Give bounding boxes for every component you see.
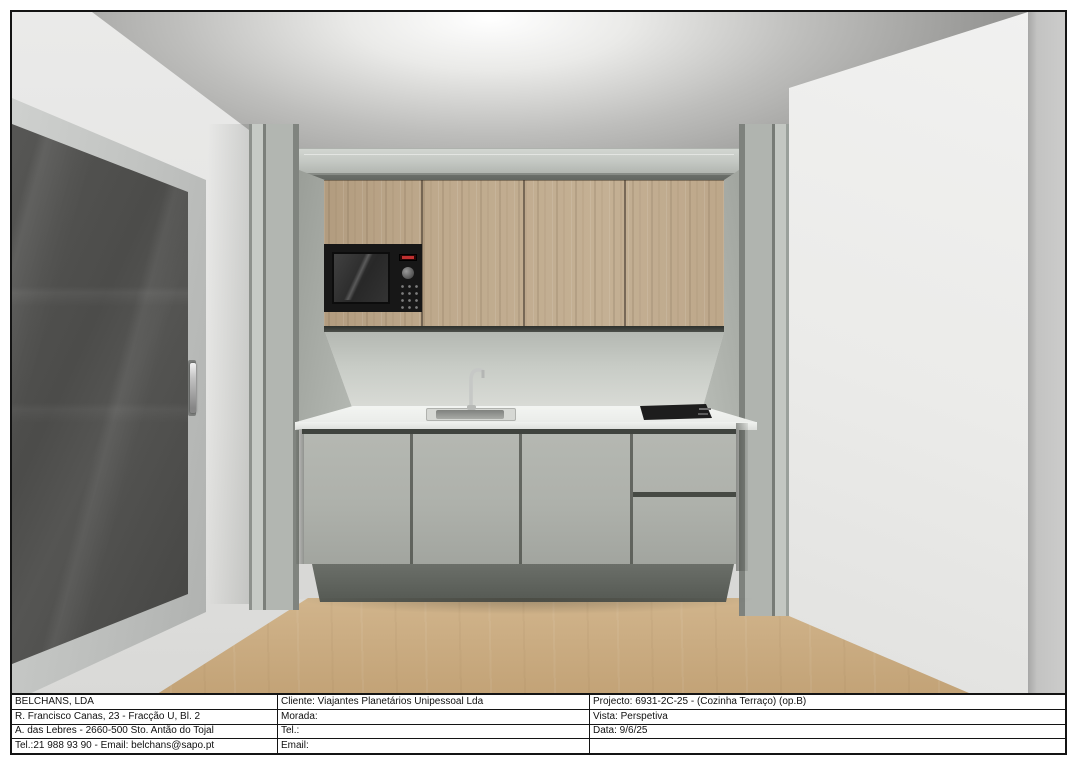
cabinet-side-shadow-right <box>736 423 748 571</box>
empty-cell <box>590 739 1065 753</box>
sheet-frame: BELCHANS, LDA Cliente: Viajantes Planetá… <box>10 10 1067 755</box>
company-name-cell: BELCHANS, LDA <box>12 695 278 709</box>
client-address-cell: Morada: <box>278 710 590 724</box>
backsplash <box>325 332 724 410</box>
microwave-keypad <box>399 283 419 309</box>
table-row: BELCHANS, LDA Cliente: Viajantes Planetá… <box>12 695 1065 710</box>
company-contact-cell: Tel.:21 988 93 90 - Email: belchans@sapo… <box>12 739 278 753</box>
sink-bowl <box>436 410 504 419</box>
door-handle <box>190 363 196 413</box>
project-cell: Projecto: 6931-2C-25 - (Cozinha Terraço)… <box>590 695 1065 709</box>
client-email-cell: Email: <box>278 739 590 753</box>
faucet <box>450 362 494 410</box>
render-viewport <box>12 12 1065 695</box>
base-cabinet-gap <box>630 434 633 564</box>
client-cell: Cliente: Viajantes Planetários Unipessoa… <box>278 695 590 709</box>
left-wall-shadow <box>208 124 252 604</box>
microwave-dial <box>402 267 414 279</box>
microwave-display <box>399 254 417 261</box>
niche-pelmet <box>299 148 739 176</box>
table-row: A. das Lebres - 2660-500 Sto. Antão do T… <box>12 725 1065 740</box>
table-row: Tel.:21 988 93 90 - Email: belchans@sapo… <box>12 739 1065 753</box>
microwave-window-reflection <box>338 254 384 300</box>
drawer-stack-gap <box>633 492 736 497</box>
company-address2-cell: A. das Lebres - 2660-500 Sto. Antão do T… <box>12 725 278 739</box>
niche-pilaster-left <box>249 124 299 610</box>
cooktop-control <box>698 413 708 415</box>
base-cabinet-gap <box>410 434 413 564</box>
date-cell: Data: 9/6/25 <box>590 725 1065 739</box>
upper-cabinet-gap <box>624 180 626 326</box>
cooktop-control <box>699 408 711 410</box>
plinth <box>312 564 734 602</box>
base-cabinet-gap <box>519 434 522 564</box>
client-tel-cell: Tel.: <box>278 725 590 739</box>
right-wall-return <box>1028 12 1065 695</box>
view-cell: Vista: Perspetiva <box>590 710 1065 724</box>
company-address1-cell: R. Francisco Canas, 23 - Fracção U, Bl. … <box>12 710 278 724</box>
upper-cabinet-bottom-shadow <box>324 326 724 332</box>
right-wall <box>782 12 1065 695</box>
table-row: R. Francisco Canas, 23 - Fracção U, Bl. … <box>12 710 1065 725</box>
info-table: BELCHANS, LDA Cliente: Viajantes Planetá… <box>12 693 1065 753</box>
floor-contact-shadow <box>300 598 752 614</box>
upper-cabinet-gap <box>523 180 525 326</box>
cabinet-side-shadow-left <box>296 429 304 564</box>
drawing-sheet: BELCHANS, LDA Cliente: Viajantes Planetá… <box>0 0 1080 764</box>
niche-pelmet-line <box>304 154 734 155</box>
